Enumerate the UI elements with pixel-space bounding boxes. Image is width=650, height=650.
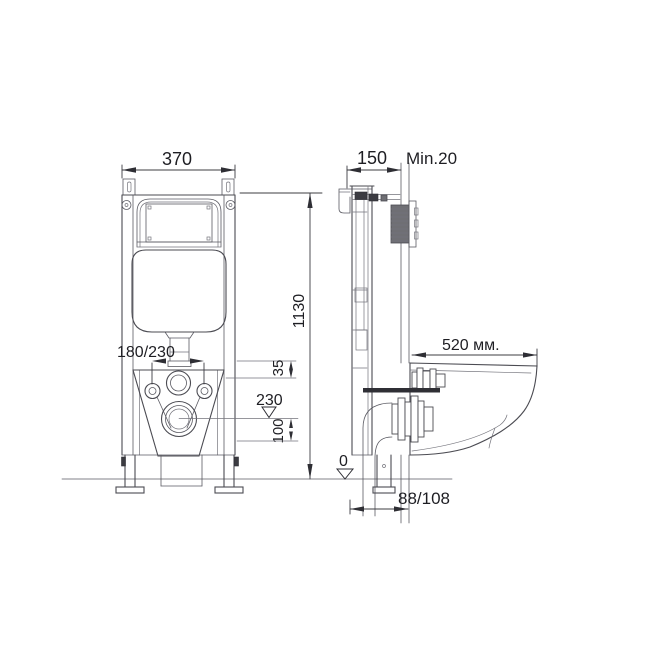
level-230-dim-label: 230 xyxy=(256,392,283,409)
bowl-length-dim-label: 520 мм. xyxy=(442,337,500,354)
frame-depth-dim-label: 150 xyxy=(357,148,387,168)
dim-offset-cluster: 35 230 100 xyxy=(179,360,298,444)
dim-frame-depth: 150 Min.20 xyxy=(347,148,457,188)
offset-100-dim-label: 100 xyxy=(270,418,287,443)
dim-frame-width: 370 xyxy=(122,149,235,178)
offset-35-dim-label: 35 xyxy=(270,360,287,377)
mounting-rod xyxy=(363,388,440,393)
frame-height-dim-label: 1130 xyxy=(291,294,308,329)
dim-bowl-length: 520 мм. xyxy=(412,337,537,366)
flush-spacing-dim-label: 180/230 xyxy=(117,344,175,361)
frame-width-dim-label: 370 xyxy=(162,149,192,169)
technical-drawing-page: 370 150 Min.20 1130 180/230 35 230 100 xyxy=(0,0,650,650)
frame-leg-side xyxy=(373,455,395,493)
frame-front-view xyxy=(116,179,243,493)
frame-side-view xyxy=(339,163,537,523)
access-panel xyxy=(137,199,221,247)
installation-diagram: 370 150 Min.20 1130 180/230 35 230 100 xyxy=(0,0,650,650)
drain-connector xyxy=(392,396,433,442)
frame-column-profile xyxy=(350,186,374,455)
drain-offset-dim-label: 88/108 xyxy=(398,489,450,508)
zero-level-label: 0 xyxy=(339,453,348,470)
flush-plate xyxy=(391,201,418,247)
hanger-tabs xyxy=(123,179,234,195)
dim-drain-offset: 88/108 xyxy=(350,489,450,514)
frame-legs xyxy=(116,455,243,493)
min-clearance-label: Min.20 xyxy=(406,149,457,168)
floor-level-mark: 0 xyxy=(337,453,353,479)
anchor-rod xyxy=(352,192,400,201)
bowl-mounting-bracket xyxy=(133,370,224,456)
